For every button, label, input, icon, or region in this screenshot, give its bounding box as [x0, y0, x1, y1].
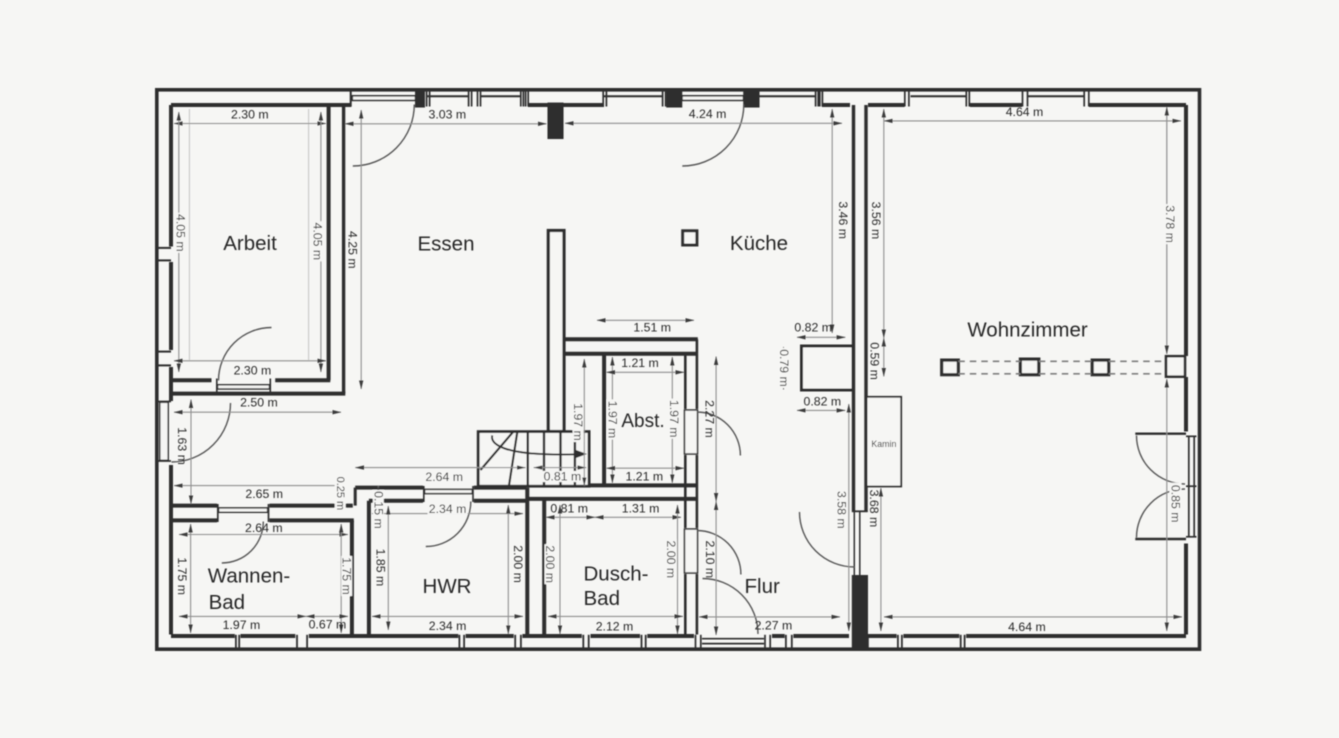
svg-text:Arbeit: Arbeit: [223, 232, 277, 255]
svg-text:Küche: Küche: [730, 232, 788, 255]
svg-text:Wohnzimmer: Wohnzimmer: [967, 319, 1088, 342]
svg-text:2.27 m: 2.27 m: [755, 619, 793, 633]
svg-text:Dusch-: Dusch-: [584, 562, 649, 585]
svg-text:2.00 m: 2.00 m: [664, 541, 678, 579]
svg-text:1.75 m: 1.75 m: [340, 557, 354, 595]
svg-text:1.85 m: 1.85 m: [374, 549, 388, 587]
svg-text:2.64 m: 2.64 m: [245, 521, 283, 535]
svg-text:1.97 m: 1.97 m: [667, 400, 681, 438]
svg-text:4.64 m: 4.64 m: [1008, 620, 1046, 634]
svg-text:4.24 m: 4.24 m: [689, 107, 727, 121]
svg-text:4.05 m: 4.05 m: [310, 223, 324, 261]
svg-text:2.50 m: 2.50 m: [240, 396, 278, 410]
svg-text:0.79 m: 0.79 m: [777, 349, 791, 387]
svg-text:1.75 m: 1.75 m: [175, 557, 189, 595]
svg-text:2.10 m: 2.10 m: [703, 541, 717, 579]
svg-text:2.00 m: 2.00 m: [511, 545, 525, 583]
svg-text:0.82 m: 0.82 m: [804, 395, 842, 409]
svg-text:1.63 m: 1.63 m: [175, 427, 189, 465]
svg-text:4.05 m: 4.05 m: [174, 214, 188, 252]
svg-text:0.85 m: 0.85 m: [1168, 485, 1182, 523]
svg-text:2.34 m: 2.34 m: [429, 619, 467, 633]
svg-text:0.81 m: 0.81 m: [550, 501, 588, 515]
svg-text:3.46 m: 3.46 m: [836, 201, 850, 239]
svg-text:HWR: HWR: [423, 575, 472, 598]
svg-text:0.67 m: 0.67 m: [309, 617, 347, 631]
svg-text:3.68 m: 3.68 m: [867, 490, 881, 528]
svg-text:2.30 m: 2.30 m: [234, 364, 272, 378]
svg-text:1.97 m: 1.97 m: [605, 401, 619, 439]
svg-text:1.21 m: 1.21 m: [621, 356, 659, 370]
svg-text:2.64 m: 2.64 m: [425, 470, 463, 484]
svg-text:2.12 m: 2.12 m: [596, 619, 634, 633]
svg-text:3.03 m: 3.03 m: [429, 108, 467, 122]
svg-text:Wannen-: Wannen-: [208, 565, 290, 588]
svg-text:0.59 m: 0.59 m: [867, 342, 881, 380]
svg-text:Flur: Flur: [745, 575, 780, 598]
svg-text:2.30 m: 2.30 m: [231, 108, 269, 122]
svg-text:1.97 m: 1.97 m: [571, 403, 585, 441]
svg-text:0.82 m: 0.82 m: [794, 321, 832, 335]
svg-text:Kamin: Kamin: [871, 439, 896, 449]
svg-text:Essen: Essen: [418, 233, 475, 256]
svg-text:1.51 m: 1.51 m: [633, 321, 671, 335]
svg-text:2.65 m: 2.65 m: [245, 487, 283, 501]
svg-text:3.56 m: 3.56 m: [869, 202, 883, 240]
svg-text:0.25 m: 0.25 m: [334, 477, 346, 511]
svg-text:Bad: Bad: [209, 591, 245, 614]
svg-text:Abst.: Abst.: [621, 411, 664, 432]
svg-text:Bad: Bad: [584, 587, 620, 610]
svg-text:2.34 m: 2.34 m: [429, 502, 467, 516]
svg-text:3.58 m: 3.58 m: [834, 491, 848, 529]
svg-text:1.97 m: 1.97 m: [223, 618, 261, 632]
svg-text:2.27 m: 2.27 m: [702, 400, 716, 438]
svg-text:0.15 m: 0.15 m: [371, 491, 385, 529]
svg-text:1.21 m: 1.21 m: [626, 470, 664, 484]
svg-text:0.81 m: 0.81 m: [544, 470, 582, 484]
svg-text:3.78 m: 3.78 m: [1163, 205, 1177, 243]
svg-text:4.64 m: 4.64 m: [1006, 105, 1044, 119]
svg-text:2.00 m: 2.00 m: [543, 545, 557, 583]
svg-text:1.31 m: 1.31 m: [622, 501, 660, 515]
svg-text:4.25 m: 4.25 m: [346, 231, 360, 269]
